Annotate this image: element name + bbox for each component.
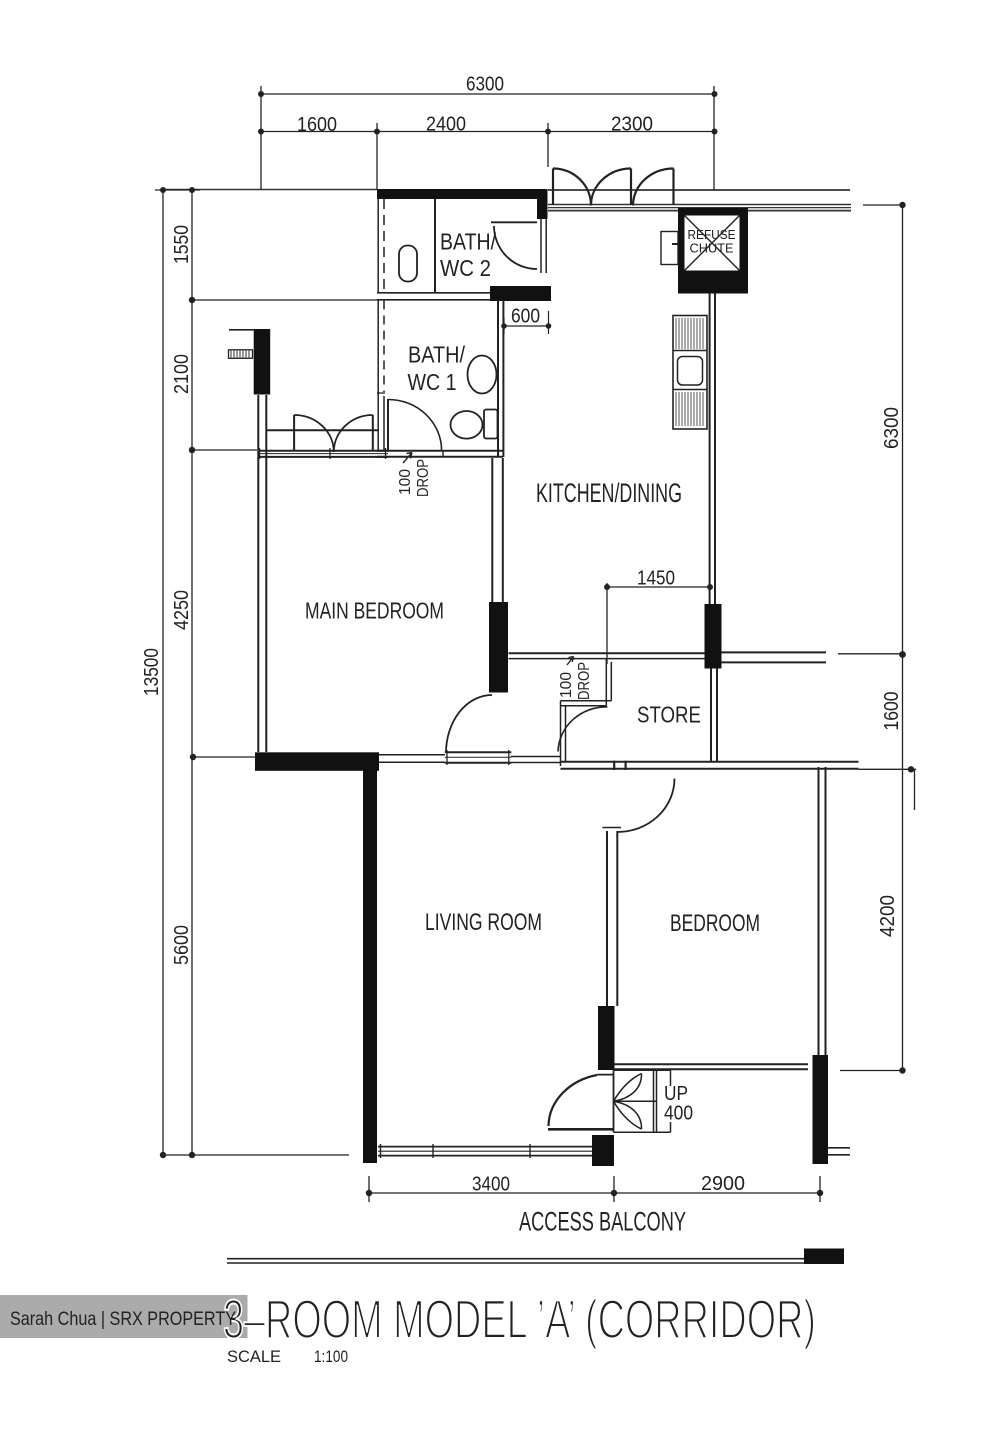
svg-text:2100: 2100 (171, 354, 193, 394)
svg-text:ACCESS BALCONY: ACCESS BALCONY (519, 1207, 686, 1237)
svg-text:REFUSE: REFUSE (688, 228, 736, 242)
svg-text:6300: 6300 (881, 407, 903, 449)
svg-text:1600: 1600 (297, 114, 337, 136)
svg-text:BEDROOM: BEDROOM (670, 910, 760, 937)
svg-text:4200: 4200 (877, 895, 899, 937)
svg-text:2400: 2400 (426, 114, 466, 136)
svg-text:1450: 1450 (637, 568, 675, 590)
svg-text:13500: 13500 (141, 648, 163, 696)
svg-text:2900: 2900 (701, 1173, 745, 1195)
svg-text:1550: 1550 (171, 225, 193, 264)
svg-text:CHUTE: CHUTE (690, 242, 734, 256)
svg-text:DROP: DROP (415, 459, 432, 497)
svg-text:WC 1: WC 1 (408, 369, 457, 395)
svg-text:KITCHEN/DINING: KITCHEN/DINING (536, 478, 682, 508)
svg-text:400: 400 (664, 1103, 693, 1125)
svg-text:BATH/: BATH/ (408, 342, 465, 368)
svg-text:100: 100 (397, 469, 414, 495)
svg-text:600: 600 (511, 306, 540, 328)
svg-text:6300: 6300 (466, 74, 504, 96)
svg-text:WC 2: WC 2 (440, 255, 491, 281)
svg-text:MAIN BEDROOM: MAIN BEDROOM (305, 598, 444, 624)
svg-text:SCALE: SCALE (227, 1348, 281, 1366)
svg-text:1600: 1600 (881, 692, 903, 731)
svg-text:100: 100 (558, 672, 575, 698)
svg-text:Sarah Chua | SRX PROPERTY: Sarah Chua | SRX PROPERTY (10, 1308, 236, 1330)
svg-text:3400: 3400 (472, 1174, 510, 1196)
svg-text:5600: 5600 (171, 925, 193, 965)
svg-text:1:100: 1:100 (314, 1348, 348, 1366)
svg-text:LIVING ROOM: LIVING ROOM (425, 909, 542, 936)
svg-text:2300: 2300 (611, 114, 653, 136)
svg-text:DROP: DROP (576, 662, 593, 700)
svg-text:BATH/: BATH/ (440, 229, 496, 255)
svg-text:STORE: STORE (637, 702, 701, 728)
svg-text:3–ROOM MODEL ’A’ (CORRIDOR): 3–ROOM MODEL ’A’ (CORRIDOR) (223, 1290, 816, 1351)
svg-text:4250: 4250 (171, 590, 193, 630)
